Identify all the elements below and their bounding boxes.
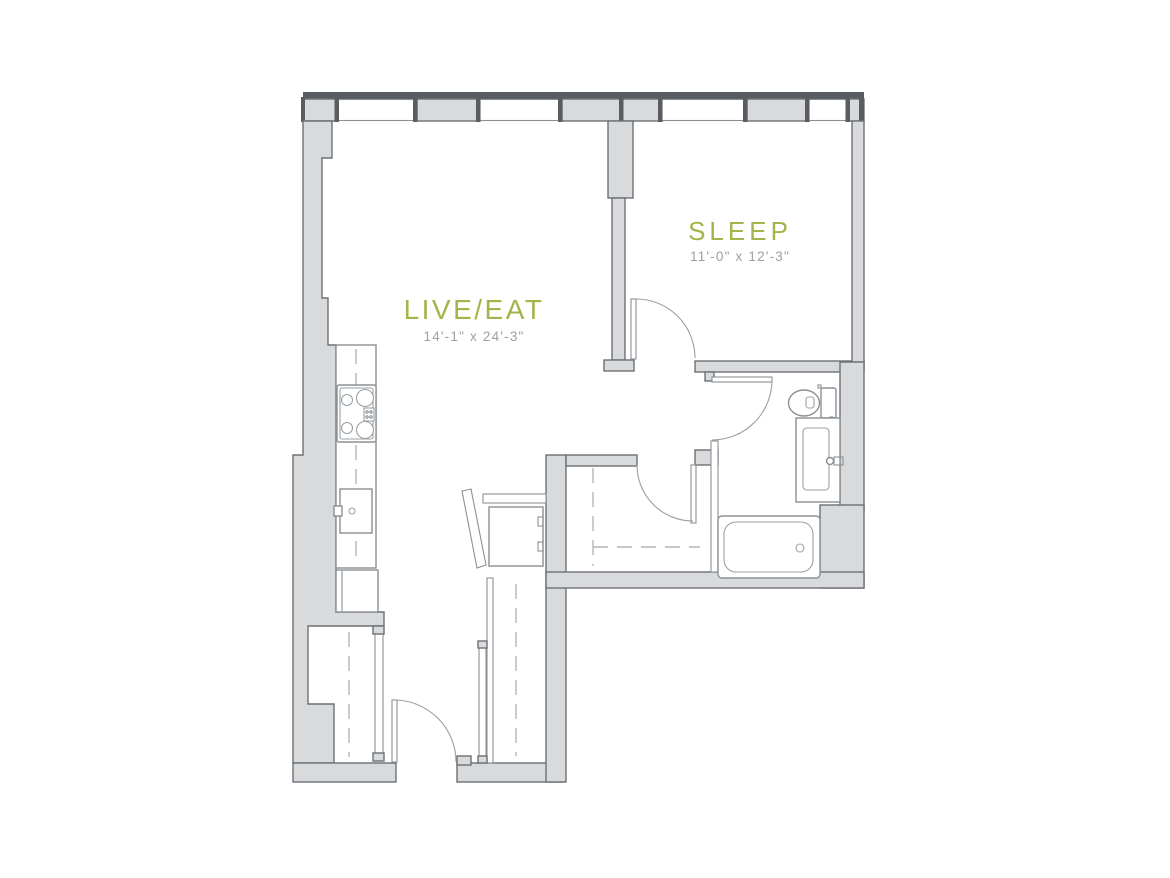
window-icon xyxy=(809,100,849,121)
window-band xyxy=(301,92,864,122)
closet-door-panel xyxy=(479,647,486,756)
window-icon xyxy=(480,100,562,121)
kitchen xyxy=(334,345,378,612)
bathtub-icon xyxy=(718,516,820,578)
closet-door-icon xyxy=(637,465,696,523)
room-dimensions-live-eat: 14'-1" x 24'-3" xyxy=(423,329,524,344)
floor-plan-page: SLEEP 11'-0" x 12'-3" LIVE/EAT 14'-1" x … xyxy=(0,0,1170,878)
interior-closet xyxy=(593,465,700,566)
room-label-sleep: SLEEP xyxy=(688,216,792,246)
toilet-icon xyxy=(789,385,837,420)
entry-door-icon xyxy=(392,700,456,762)
refrigerator-icon xyxy=(336,570,378,612)
closet-door-panel xyxy=(375,628,383,761)
vanity-sink-icon xyxy=(796,418,843,502)
cooktop-icon xyxy=(337,385,376,442)
room-label-live-eat: LIVE/EAT xyxy=(404,294,545,325)
room-live-eat: LIVE/EAT 14'-1" x 24'-3" xyxy=(404,294,545,344)
room-dimensions-sleep: 11'-0" x 12'-3" xyxy=(690,249,790,264)
kitchen-sink-icon xyxy=(334,489,372,533)
washer-dryer-icon xyxy=(462,489,546,568)
window-icon xyxy=(662,100,747,121)
bathroom-door-icon xyxy=(712,377,772,440)
room-sleep: SLEEP 11'-0" x 12'-3" xyxy=(688,216,792,264)
window-icon xyxy=(337,100,417,121)
bedroom-door-icon xyxy=(631,299,695,359)
floor-plan: SLEEP 11'-0" x 12'-3" LIVE/EAT 14'-1" x … xyxy=(0,0,1170,878)
